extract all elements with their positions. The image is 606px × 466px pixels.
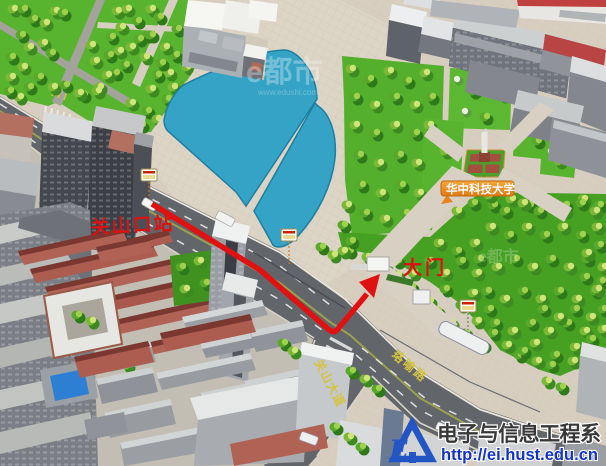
svg-text:e都市: e都市 (246, 55, 323, 89)
svg-text:华中科技大学: 华中科技大学 (446, 182, 515, 196)
svg-text:www.edushi.com: www.edushi.com (257, 88, 318, 97)
svg-text:电子与信息工程系: 电子与信息工程系 (437, 422, 601, 446)
svg-text:E: E (388, 433, 409, 466)
svg-text:大门: 大门 (403, 256, 447, 279)
svg-text:e都市: e都市 (478, 247, 519, 266)
svg-text:http://ei.hust.edu.cn: http://ei.hust.edu.cn (441, 445, 598, 464)
